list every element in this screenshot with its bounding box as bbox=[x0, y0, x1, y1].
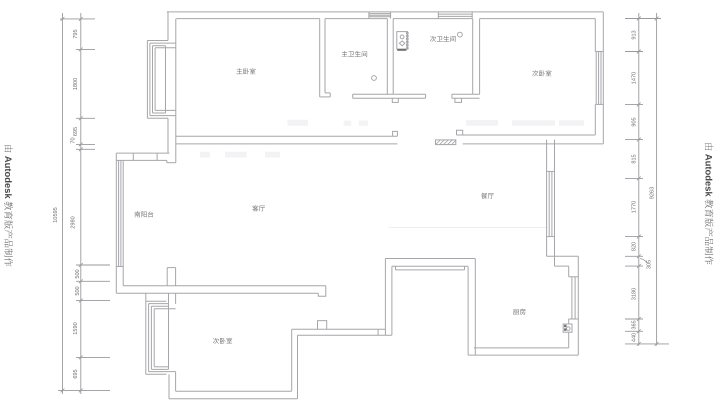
svg-text:440: 440 bbox=[632, 333, 638, 342]
svg-text:9263: 9263 bbox=[650, 187, 656, 199]
svg-text:3180: 3180 bbox=[632, 288, 638, 300]
svg-text:695: 695 bbox=[73, 369, 79, 378]
svg-text:913: 913 bbox=[632, 30, 638, 39]
svg-text:815: 815 bbox=[632, 154, 638, 163]
svg-text:365: 365 bbox=[632, 320, 638, 329]
svg-text:1470: 1470 bbox=[632, 72, 638, 84]
svg-text:70: 70 bbox=[71, 137, 77, 143]
svg-text:1590: 1590 bbox=[73, 322, 79, 334]
svg-text:305: 305 bbox=[647, 260, 653, 269]
svg-text:695: 695 bbox=[73, 127, 79, 136]
svg-text:2980: 2980 bbox=[71, 216, 77, 228]
svg-text:500: 500 bbox=[75, 269, 81, 278]
svg-text:905: 905 bbox=[632, 117, 638, 126]
svg-text:500: 500 bbox=[75, 286, 81, 295]
svg-text:1800: 1800 bbox=[73, 78, 79, 90]
svg-text:10595: 10595 bbox=[53, 207, 59, 223]
svg-text:1770: 1770 bbox=[632, 201, 638, 213]
svg-text:795: 795 bbox=[73, 29, 79, 38]
svg-text:820: 820 bbox=[632, 242, 638, 251]
